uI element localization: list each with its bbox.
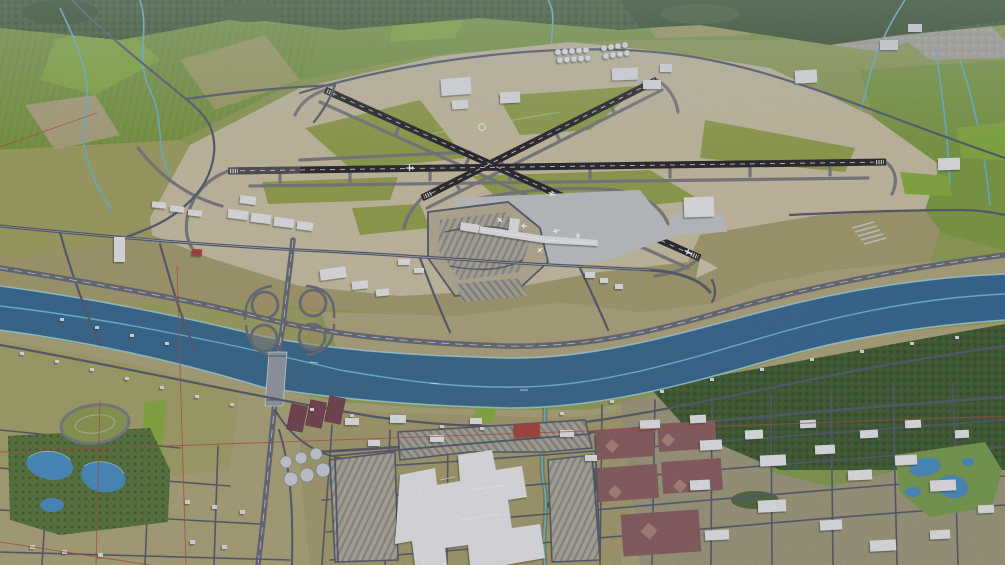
map-viewport[interactable] bbox=[0, 0, 1005, 565]
aerial-render bbox=[0, 0, 1005, 565]
atmosphere bbox=[0, 0, 1005, 565]
